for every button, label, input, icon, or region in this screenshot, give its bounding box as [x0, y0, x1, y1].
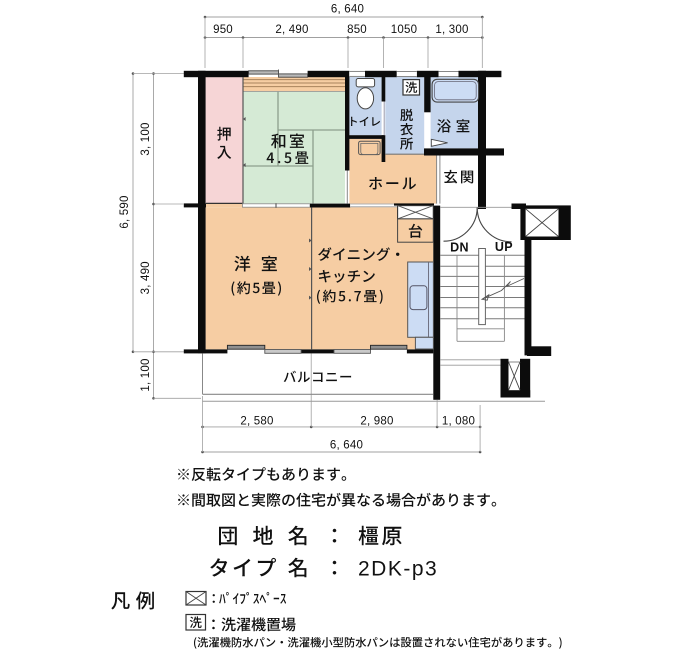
- svg-text:2, 490: 2, 490: [275, 24, 308, 36]
- svg-text:UP: UP: [495, 240, 513, 254]
- svg-text:2, 980: 2, 980: [360, 416, 393, 428]
- svg-text:6, 590: 6, 590: [119, 195, 131, 228]
- svg-text:1, 080: 1, 080: [442, 416, 475, 428]
- svg-text:3, 490: 3, 490: [140, 261, 152, 294]
- svg-text:DN: DN: [450, 241, 469, 255]
- svg-text:850: 850: [347, 24, 367, 36]
- svg-text:6, 640: 6, 640: [330, 440, 363, 452]
- svg-text:1050: 1050: [391, 24, 417, 36]
- svg-text:6, 640: 6, 640: [331, 4, 364, 16]
- svg-text:1, 100: 1, 100: [140, 358, 152, 391]
- svg-text:950: 950: [213, 24, 233, 36]
- svg-text:1, 300: 1, 300: [435, 24, 468, 36]
- svg-text:2DK-p3: 2DK-p3: [358, 558, 438, 581]
- svg-text:2, 580: 2, 580: [240, 416, 273, 428]
- svg-text:3, 100: 3, 100: [140, 122, 152, 155]
